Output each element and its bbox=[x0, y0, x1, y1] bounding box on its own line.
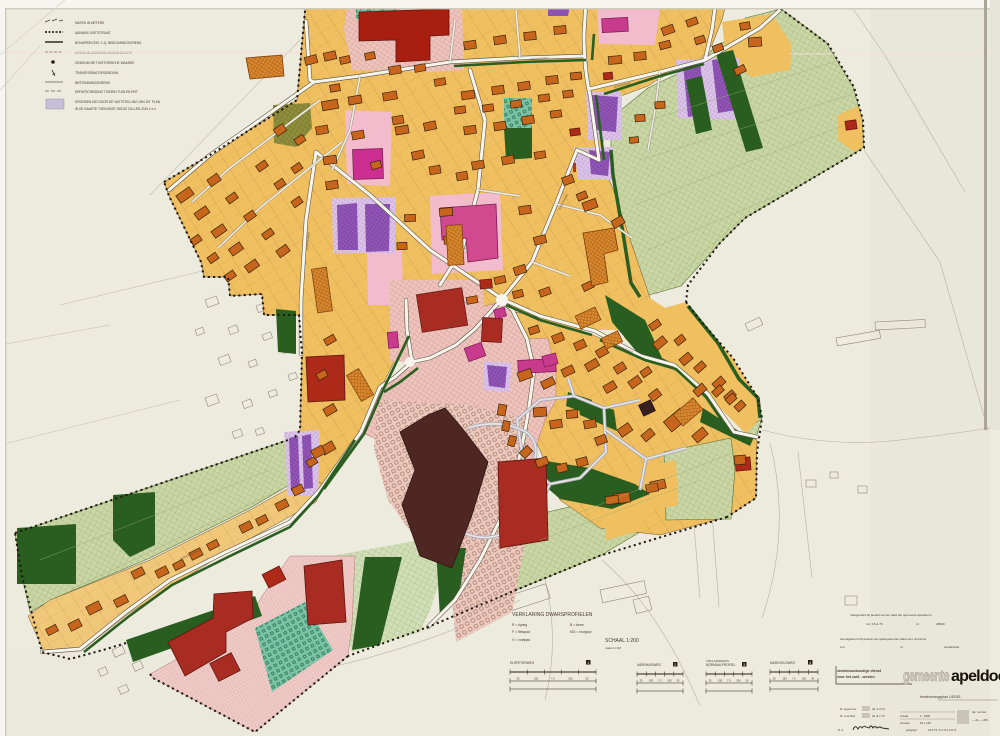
svg-text:150: 150 bbox=[736, 679, 741, 683]
svg-text:R = rijweg: R = rijweg bbox=[512, 623, 527, 627]
svg-text:dd. 2-4-76: dd. 2-4-76 bbox=[872, 707, 885, 711]
svg-text:AARDHUISWEG: AARDHUISWEG bbox=[637, 663, 662, 667]
svg-text:Vastgesteld bij besluit van de: Vastgesteld bij besluit van de raad der … bbox=[850, 613, 932, 617]
svg-text:MARKVELDWEG: MARKVELDWEG bbox=[770, 661, 796, 665]
svg-text:7.0: 7.0 bbox=[792, 677, 796, 681]
svg-text:Gelderland: Gelderland bbox=[944, 645, 959, 649]
svg-text:Goedgekeurd bij besluit van ge: Goedgekeurd bij besluit van gedeputeerde… bbox=[840, 637, 926, 641]
svg-text:90 x 148: 90 x 148 bbox=[920, 721, 931, 725]
svg-text:150: 150 bbox=[534, 677, 539, 681]
svg-text:150: 150 bbox=[667, 679, 672, 683]
svg-text:gemeente: gemeente bbox=[903, 668, 950, 685]
svg-text:d.d. 15-4-76: d.d. 15-4-76 bbox=[866, 622, 883, 626]
svg-text:V = voetpad: V = voetpad bbox=[512, 638, 530, 642]
svg-text:150: 150 bbox=[568, 677, 573, 681]
svg-text:IN DE NAASTE TOEKOMST NODIG ZU: IN DE NAASTE TOEKOMST NODIG ZULLEN ZIJN … bbox=[75, 107, 156, 111]
svg-text:BOUWPERCEEL C.Q. BEBOUWINGSGRE: BOUWPERCEEL C.Q. BEBOUWINGSGRENS bbox=[75, 41, 141, 45]
svg-text:nr.: nr. bbox=[916, 622, 920, 626]
svg-text:ELSPETERWEG: ELSPETERWEG bbox=[510, 661, 535, 665]
svg-text:tek. nummer: tek. nummer bbox=[972, 710, 987, 714]
svg-text:150: 150 bbox=[649, 679, 654, 683]
svg-text:nr.: nr. bbox=[900, 645, 904, 649]
svg-text:150: 150 bbox=[802, 677, 807, 681]
svg-text:B. nr: B. nr bbox=[838, 728, 844, 732]
svg-text:schaal: schaal bbox=[900, 714, 908, 718]
svg-text:M. tegenover: M. tegenover bbox=[840, 707, 856, 711]
svg-text:4 BIJ AARDHUIS: 4 BIJ AARDHUIS bbox=[706, 659, 729, 663]
svg-text:1 : 2500: 1 : 2500 bbox=[920, 714, 931, 718]
svg-text:TRANSFORMATORGEBOUW: TRANSFORMATORGEBOUW bbox=[75, 71, 118, 75]
svg-text:formaat: formaat bbox=[900, 721, 910, 725]
svg-text:7.0: 7.0 bbox=[658, 679, 662, 683]
svg-text:MG = molgoot: MG = molgoot bbox=[570, 630, 591, 634]
svg-text:d.d.: d.d. bbox=[840, 645, 845, 649]
svg-text:VERKLARING DWARSPROFIELEN: VERKLARING DWARSPROFIELEN bbox=[512, 612, 593, 618]
svg-text:— AL — 205: — AL — 205 bbox=[972, 718, 988, 722]
svg-text:GEBOUW MET HISTORISCHE WAARDE: GEBOUW MET HISTORISCHE WAARDE bbox=[75, 61, 134, 65]
svg-text:apeldoorn: apeldoorn bbox=[951, 668, 1000, 685]
svg-text:MATEN IN METERS: MATEN IN METERS bbox=[75, 21, 104, 25]
svg-text:ERFAFSCHEIDING TUSSEN TUIN EN: ERFAFSCHEIDING TUSSEN TUIN EN ERF bbox=[75, 90, 138, 94]
svg-text:voor het zuid - westen: voor het zuid - westen bbox=[837, 675, 875, 679]
svg-text:dd. 8-7-76: dd. 8-7-76 bbox=[872, 714, 885, 718]
svg-text:AANWAS VOETSTRAAT: AANWAS VOETSTRAAT bbox=[75, 31, 111, 35]
svg-text:29-5-75 | 5-1-76 | 9-9-75: 29-5-75 | 5-1-76 | 9-9-75 bbox=[928, 728, 957, 732]
svg-text:stedebouwkundige dienst: stedebouwkundige dienst bbox=[837, 669, 882, 673]
svg-text:BESTEMMINGSGRENS: BESTEMMINGSGRENS bbox=[75, 81, 110, 85]
svg-text:B = berm: B = berm bbox=[570, 623, 584, 627]
svg-text:F = fietspad: F = fietspad bbox=[512, 630, 530, 634]
svg-text:maten in CM: maten in CM bbox=[605, 646, 622, 650]
svg-text:150: 150 bbox=[782, 677, 787, 681]
svg-text:7.0: 7.0 bbox=[551, 677, 555, 681]
svg-text:28699: 28699 bbox=[936, 622, 945, 626]
svg-text:150: 150 bbox=[718, 679, 723, 683]
svg-text:M. voorzitter: M. voorzitter bbox=[840, 714, 855, 718]
svg-text:bestemmingsplan UDDEL: bestemmingsplan UDDEL bbox=[920, 695, 961, 699]
svg-text:SCHAAL 1:200: SCHAAL 1:200 bbox=[605, 638, 639, 644]
svg-text:NORMAALPROFIEL: NORMAALPROFIEL bbox=[706, 663, 736, 667]
svg-text:gewijzigd: gewijzigd bbox=[906, 728, 917, 732]
svg-text:7.0: 7.0 bbox=[727, 679, 731, 683]
svg-text:GRONDEN DIE DOOR DE VASTSTELLI: GRONDEN DIE DOOR DE VASTSTELLING VAN DIT… bbox=[75, 100, 161, 104]
